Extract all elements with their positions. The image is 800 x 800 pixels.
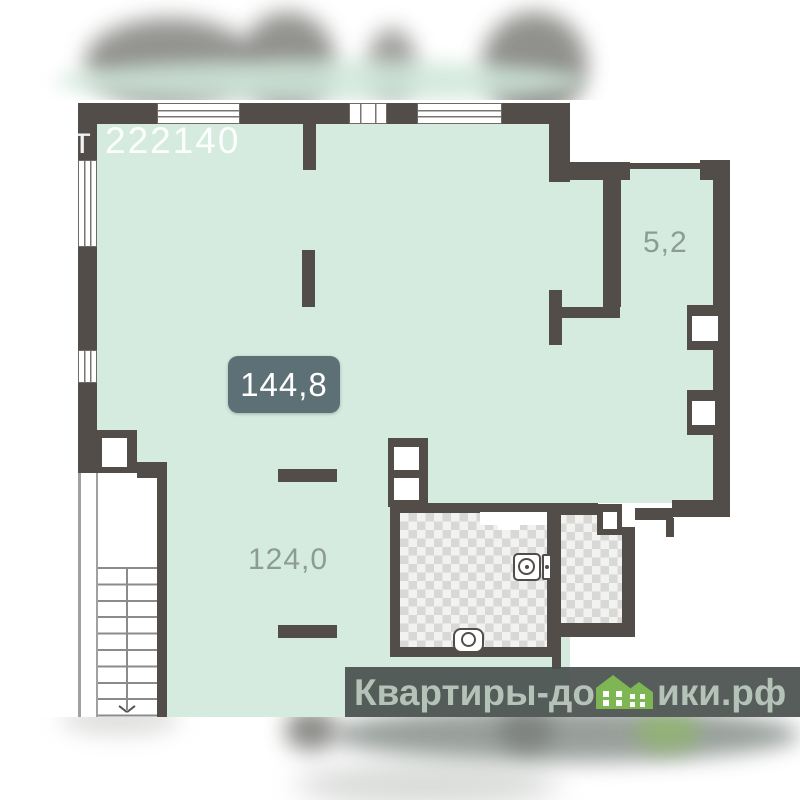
stub-wall-lower-1 [278, 469, 337, 482]
window-top-3 [417, 103, 502, 124]
green-houses-icon [596, 673, 656, 711]
blur-blob-stair [60, 717, 180, 735]
stair-center-line [126, 567, 128, 710]
house-small-icon [625, 682, 653, 709]
tee-wall-vertical [549, 290, 562, 345]
wall-bath-left [390, 503, 400, 657]
blur-blob-green [55, 60, 585, 100]
window-top-2 [349, 103, 387, 124]
blurred-bottom-edge [0, 717, 800, 800]
washing-machine-dot [525, 565, 529, 569]
window-left-large [78, 160, 97, 247]
wall-shower-bottom [555, 623, 635, 637]
price-watermark: от 222140 [52, 120, 240, 162]
bath-door-step [498, 512, 520, 530]
tee-wall-horizontal [562, 307, 620, 318]
bath-duct-opening-1 [394, 447, 419, 470]
loggia-area-label: 5,2 [643, 226, 688, 260]
stub-wall-lower-2 [278, 625, 337, 638]
blurred-top-edge [0, 0, 800, 100]
total-area-badge: 144,8 [228, 356, 340, 413]
toilet-bowl [461, 632, 476, 647]
stub-wall-middle [302, 250, 315, 307]
bath-duct-opening-2 [394, 478, 419, 500]
wall-loggia-left [603, 180, 621, 307]
stub-wall-top [303, 124, 316, 170]
main-area-label: 124,0 [248, 543, 328, 577]
sink-dot [545, 565, 549, 569]
floor-plan: от 222140 144,8 5,2 124,0 Квартиры-до ик… [0, 0, 800, 800]
floor-plan-photo: от 222140 144,8 5,2 124,0 Квартиры-до ик… [0, 0, 800, 800]
shower-duct-opening [603, 512, 617, 529]
site-watermark-bar: Квартиры-до ики.рф [345, 667, 800, 717]
wall-bottom-right [672, 500, 730, 517]
duct-niche-lower-opening [692, 401, 715, 425]
blur-blob [285, 717, 337, 751]
stair-shaft-opening [102, 438, 127, 467]
stairwell-outer-line [78, 473, 81, 717]
site-watermark-left: Квартиры-до [354, 674, 595, 711]
wall-stair-right [157, 462, 167, 717]
house-large-icon [596, 675, 630, 709]
wall-notch-tick [666, 518, 674, 537]
blur-blob-bar [330, 717, 800, 762]
site-watermark-right: ики.рф [657, 674, 786, 711]
duct-niche-upper-opening [692, 316, 718, 341]
wall-shower-right [622, 527, 635, 637]
window-left-small [78, 350, 97, 383]
wall-shower-top [555, 503, 598, 515]
blur-blob-faint [295, 762, 560, 800]
